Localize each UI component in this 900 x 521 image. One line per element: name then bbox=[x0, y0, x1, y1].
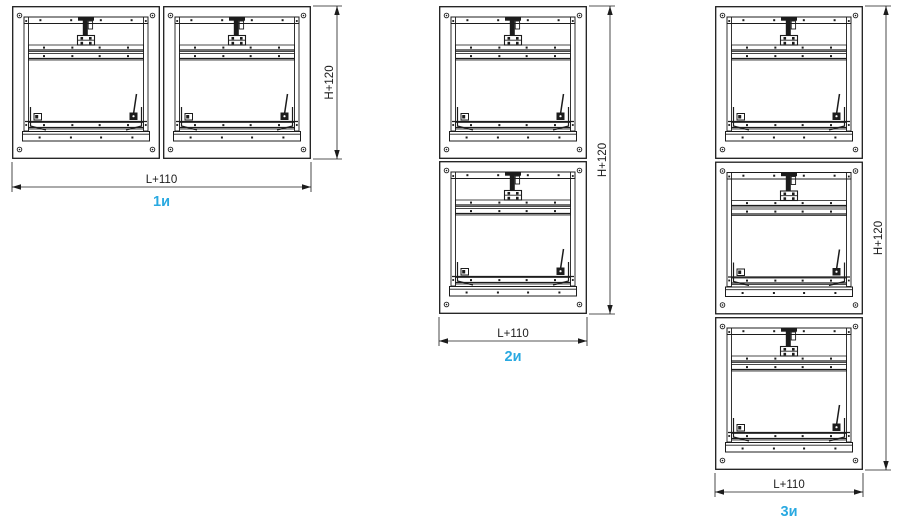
technical-drawing: L+110H+1201и L+110H+1202и L+110H+1203и bbox=[0, 0, 900, 521]
diagram-caption: 3и bbox=[781, 504, 798, 520]
dimension-arrow-icon bbox=[883, 461, 888, 470]
frame-unit bbox=[440, 162, 587, 314]
dimension-arrow-icon bbox=[439, 338, 448, 343]
height-dimension: H+120 bbox=[313, 6, 342, 159]
dimension-arrow-icon bbox=[715, 489, 724, 494]
diagram-1i-assembly: L+110H+1201и bbox=[12, 6, 342, 210]
dimension-arrow-icon bbox=[334, 6, 339, 15]
dimension-arrow-icon bbox=[334, 150, 339, 159]
frame-unit bbox=[716, 7, 863, 159]
diagram-caption: 1и bbox=[153, 194, 170, 210]
frame-unit bbox=[13, 7, 160, 159]
dimension-arrow-icon bbox=[607, 305, 612, 314]
width-dimension: L+110 bbox=[439, 317, 587, 346]
height-dimension-label: H+120 bbox=[324, 65, 336, 99]
diagram-canvas: L+110H+1201и L+110H+1202и L+110H+1203и bbox=[0, 0, 900, 521]
height-dimension: H+120 bbox=[865, 6, 891, 470]
width-dimension-label: L+110 bbox=[773, 479, 804, 491]
height-dimension: H+120 bbox=[589, 6, 615, 314]
height-dimension-label: H+120 bbox=[597, 143, 609, 177]
frame-unit bbox=[716, 162, 863, 314]
dimension-arrow-icon bbox=[883, 6, 888, 15]
width-dimension-label: L+110 bbox=[497, 328, 528, 340]
width-dimension-label: L+110 bbox=[146, 174, 177, 186]
width-dimension: L+110 bbox=[715, 473, 863, 497]
dimension-arrow-icon bbox=[854, 489, 863, 494]
diagram-2i-assembly: L+110H+1202и bbox=[439, 6, 615, 365]
dimension-arrow-icon bbox=[302, 184, 311, 189]
dimension-arrow-icon bbox=[12, 184, 21, 189]
diagram-3i-assembly: L+110H+1203и bbox=[715, 6, 891, 520]
diagram-caption: 2и bbox=[505, 349, 522, 365]
dimension-arrow-icon bbox=[607, 6, 612, 15]
width-dimension: L+110 bbox=[12, 162, 311, 192]
frame-unit bbox=[164, 7, 311, 159]
height-dimension-label: H+120 bbox=[873, 221, 885, 255]
dimension-arrow-icon bbox=[578, 338, 587, 343]
frame-unit bbox=[440, 7, 587, 159]
frame-unit bbox=[716, 318, 863, 470]
